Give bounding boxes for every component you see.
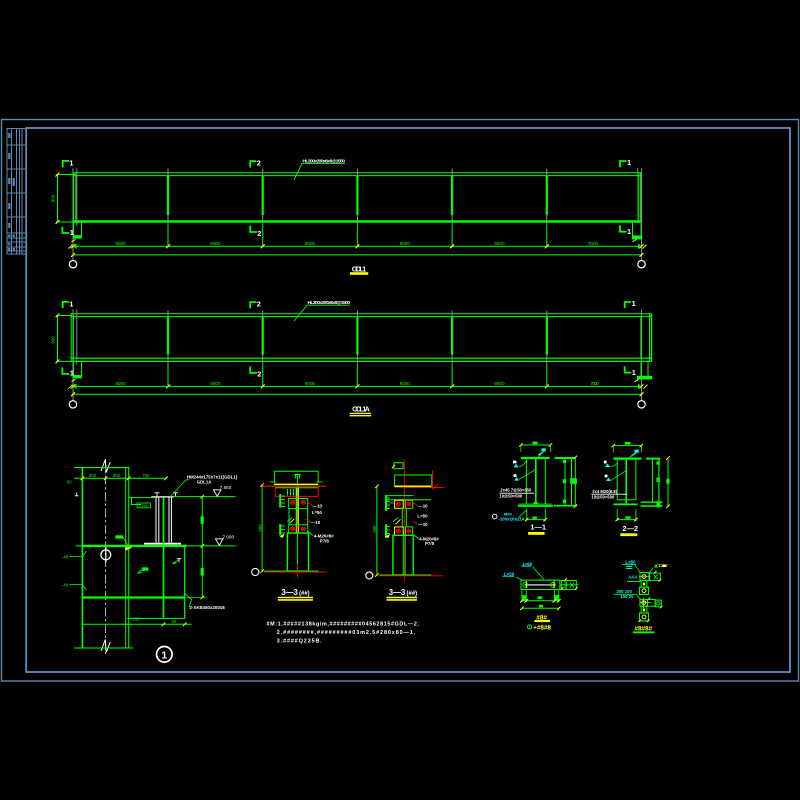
svg-text:1: 1 xyxy=(161,649,167,661)
svg-text:1: 1 xyxy=(627,227,631,236)
svg-text:3.####Q235B.: 3.####Q235B. xyxy=(277,639,323,645)
svg-text:P7/8: P7/8 xyxy=(425,541,435,546)
svg-text:900: 900 xyxy=(50,194,55,202)
svg-text:—10: —10 xyxy=(313,504,323,509)
svg-text:—10: —10 xyxy=(418,504,428,509)
svg-text:9000: 9000 xyxy=(210,241,221,246)
svg-text:3—3: 3—3 xyxy=(389,588,406,597)
svg-text:1: 1 xyxy=(69,158,73,167)
svg-text:1: 1 xyxy=(69,299,73,308)
svg-text:—10: —10 xyxy=(418,522,428,527)
svg-text:900: 900 xyxy=(257,524,262,532)
svg-text:1: 1 xyxy=(632,299,636,308)
svg-text:L=50: L=50 xyxy=(417,513,428,518)
svg-text:1: 1 xyxy=(632,368,636,377)
svg-text:2: 2 xyxy=(257,300,261,309)
svg-text:9000: 9000 xyxy=(494,381,505,386)
svg-text:1: 1 xyxy=(70,369,74,378)
svg-text:7.000: 7.000 xyxy=(223,534,235,539)
svg-text:AAA: AAA xyxy=(628,575,637,580)
svg-text:HM244x175x7x11(GDL1): HM244x175x7x11(GDL1) xyxy=(187,475,238,480)
svg-text:#8#8#: #8#8# xyxy=(634,625,652,632)
svg-text:2x4 M20(8.8): 2x4 M20(8.8) xyxy=(592,489,618,494)
svg-text:1: 1 xyxy=(627,158,631,167)
svg-text:9000: 9000 xyxy=(305,241,316,246)
svg-text:2: 2 xyxy=(257,370,261,379)
svg-text:2.########,#########03m2.5#280: 2.########,#########03m2.5#280x80—1. xyxy=(277,630,416,636)
svg-text:2x45 7@50=350: 2x45 7@50=350 xyxy=(500,487,532,492)
svg-text:+#8#8: +#8#8 xyxy=(533,624,551,631)
svg-text:900: 900 xyxy=(372,525,377,533)
svg-text:-40: -40 xyxy=(62,582,69,587)
svg-text:L=50: L=50 xyxy=(625,559,636,564)
svg-text:2—2: 2—2 xyxy=(622,524,638,533)
svg-text:#M:1.#####138kg/m,#########045: #M:1.#####138kg/m,#########04562815#GDL—… xyxy=(267,622,420,628)
svg-text:L=50: L=50 xyxy=(312,510,323,515)
svg-text:-40: -40 xyxy=(62,554,69,559)
svg-text:900: 900 xyxy=(50,336,55,344)
svg-text:HL200x200x6x8@1500: HL200x200x6x8@1500 xyxy=(308,300,351,306)
svg-text:GDL1A: GDL1A xyxy=(352,405,370,414)
svg-text:-100x10x214: -100x10x214 xyxy=(498,516,524,521)
svg-text:9000: 9000 xyxy=(115,241,126,246)
svg-text:2: 2 xyxy=(257,159,261,168)
svg-text:1—1: 1—1 xyxy=(530,523,546,532)
svg-text:2: 2 xyxy=(257,229,261,238)
svg-text:7000: 7000 xyxy=(590,381,599,386)
svg-text:50: 50 xyxy=(67,480,72,485)
svg-text:9000: 9000 xyxy=(400,381,411,386)
svg-text:P7/8: P7/8 xyxy=(320,539,330,544)
svg-text:1: 1 xyxy=(70,228,74,237)
svg-text:—10: —10 xyxy=(311,520,321,525)
svg-text:150 25: 150 25 xyxy=(620,594,634,599)
svg-text:(##): (##) xyxy=(299,591,310,597)
svg-text:2-XKB450x200x8: 2-XKB450x200x8 xyxy=(190,605,226,610)
svg-text:700: 700 xyxy=(142,473,150,478)
svg-text:7000: 7000 xyxy=(588,241,599,246)
svg-text:GDL1A: GDL1A xyxy=(197,479,213,484)
svg-text:7.850: 7.850 xyxy=(220,485,232,490)
svg-text:9000: 9000 xyxy=(210,381,221,386)
svg-text:350: 350 xyxy=(113,473,121,478)
svg-text:(##): (##) xyxy=(407,591,418,597)
svg-text:150: 150 xyxy=(133,616,141,621)
svg-text:1-150: 1-150 xyxy=(138,504,148,508)
svg-text:10@50=500: 10@50=500 xyxy=(591,494,615,499)
svg-text:60: 60 xyxy=(172,619,177,624)
svg-text:9000: 9000 xyxy=(305,381,316,386)
svg-text:10@50=500: 10@50=500 xyxy=(499,493,523,498)
svg-text:GDL1: GDL1 xyxy=(352,264,367,273)
svg-text:9000: 9000 xyxy=(494,241,505,246)
svg-text:HL200x200x6x8@1500: HL200x200x6x8@1500 xyxy=(303,158,346,164)
svg-text:300: 300 xyxy=(89,473,97,478)
svg-text:9000: 9000 xyxy=(400,241,411,246)
svg-text:9000: 9000 xyxy=(115,381,126,386)
svg-text:3—3: 3—3 xyxy=(281,588,298,597)
svg-text:L=50: L=50 xyxy=(504,571,515,576)
